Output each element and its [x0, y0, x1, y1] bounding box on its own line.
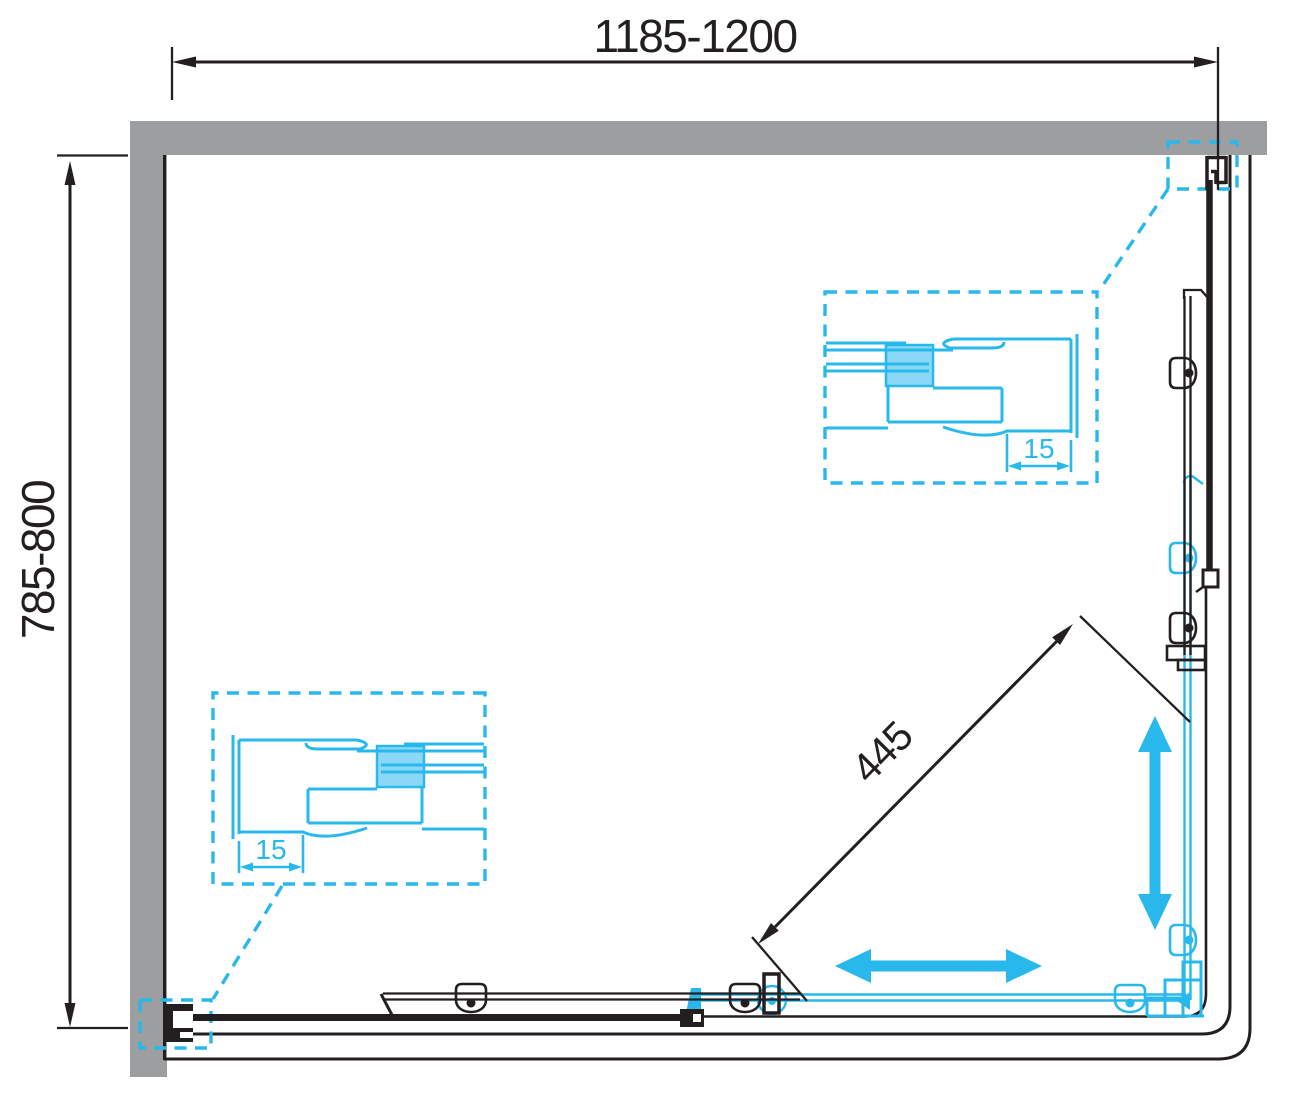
profile-notch — [180, 1032, 193, 1038]
detail-callout-top: 15 — [825, 292, 1097, 483]
roller-axle — [1126, 999, 1135, 1008]
bottom-fixed-rail — [193, 1009, 704, 1027]
arrow-head-down-icon — [1138, 894, 1172, 930]
technical-drawing-canvas: 1185-1200 785-800 445 — [0, 0, 1300, 1107]
roller-axle — [1185, 554, 1194, 563]
step-outline — [1147, 962, 1201, 1016]
diagonal-dimension-label: 445 — [843, 713, 922, 792]
detail-callout-bottom: 15 — [213, 693, 485, 884]
travel-arrow-horizontal — [835, 949, 1042, 983]
profile-section-drawing-mirrored — [213, 693, 485, 884]
arrow-head-left-icon — [835, 949, 871, 983]
width-dimension-label: 1185-1200 — [593, 10, 796, 62]
door-hardware — [166, 156, 1226, 1042]
roller-axle — [1185, 624, 1194, 633]
roller-axle — [741, 999, 750, 1008]
walls — [130, 121, 1267, 1077]
dimension-line — [775, 641, 1057, 927]
panel-top-hook — [1184, 290, 1208, 299]
rail-end-cap-notch — [693, 1014, 701, 1022]
diagonal-dimension: 445 — [752, 616, 1190, 1001]
tray-inner-edge — [164, 155, 1230, 1034]
door-end-hook — [1196, 587, 1203, 592]
roller-bracket — [1115, 985, 1145, 1000]
callout-leader-bottom — [213, 886, 282, 999]
detail-offset-label-top: 15 — [1023, 433, 1054, 464]
depth-dimension-label: 785-800 — [12, 481, 64, 639]
profile-notch — [173, 1011, 193, 1028]
shower-enclosure-plan: 1185-1200 785-800 445 — [0, 0, 1300, 1107]
sliding-door-bottom-black — [381, 974, 800, 1015]
extension-line — [1080, 616, 1190, 722]
arrow-head-right-icon — [1194, 57, 1218, 68]
callout-markers — [140, 142, 1237, 1048]
width-dimension: 1185-1200 — [172, 10, 1218, 190]
door-end-bracket — [1203, 570, 1218, 587]
arrow-head-up-icon — [65, 161, 76, 185]
top-wall — [130, 121, 1267, 155]
tray-outer-edge — [164, 155, 1250, 1059]
roller-axle — [768, 997, 776, 1005]
callout-leader-top — [1099, 189, 1168, 291]
arrow-head-up-icon — [1138, 716, 1172, 752]
corner-post-bracket — [1147, 962, 1204, 1016]
roller-bracket — [1170, 543, 1184, 573]
depth-dimension: 785-800 — [12, 156, 128, 1029]
travel-arrow-vertical — [1138, 716, 1172, 930]
arrow-head-right-icon — [1006, 949, 1042, 983]
panel-foot-bracket — [1167, 646, 1205, 660]
roller-axle — [1185, 369, 1194, 378]
profile-section-drawing — [825, 292, 1097, 483]
left-wall — [130, 121, 167, 1077]
tray-track-line — [702, 588, 1206, 1017]
roller-bracket — [1170, 358, 1184, 388]
fixed-panel-right-black — [1167, 290, 1208, 670]
roller-axle — [467, 999, 476, 1008]
roller-bracket — [1170, 613, 1184, 643]
door-top-hook — [1184, 476, 1203, 484]
corner-profile-bottom-left — [166, 1004, 193, 1042]
shower-tray — [164, 155, 1250, 1059]
sliding-door-right-black — [1196, 180, 1218, 592]
arrow-head-left-icon — [172, 57, 196, 68]
roller-axle — [1185, 936, 1194, 945]
arrow-head-down-icon — [65, 1003, 76, 1027]
detail-offset-label-bottom: 15 — [255, 834, 286, 865]
roller-bracket — [730, 984, 760, 1000]
roller-bracket — [1170, 925, 1184, 955]
door-end-cap — [381, 994, 392, 1015]
roller-bracket — [456, 984, 486, 1000]
